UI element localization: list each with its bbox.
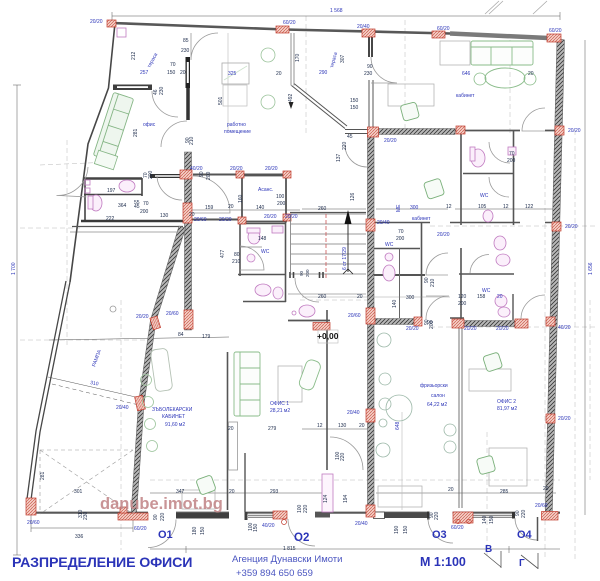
svg-text:285: 285 [500,489,509,495]
svg-text:46: 46 [153,89,159,95]
svg-text:20/40: 20/40 [357,24,370,30]
svg-text:120: 120 [458,294,467,300]
svg-text:90: 90 [427,320,433,326]
svg-text:20/20: 20/20 [496,326,509,332]
svg-text:Г: Г [519,558,525,569]
svg-text:148: 148 [258,236,267,242]
svg-text:60/20: 60/20 [437,26,450,32]
svg-text:180: 180 [192,526,198,535]
svg-text:150: 150 [350,105,359,111]
svg-text:20: 20 [359,423,365,429]
svg-text:70: 70 [398,229,404,235]
svg-text:20/40: 20/40 [347,410,360,416]
svg-text:20: 20 [357,294,363,300]
svg-text:20/40: 20/40 [355,521,368,527]
svg-text:122: 122 [525,204,534,210]
svg-text:20/20: 20/20 [558,416,571,422]
svg-text:20: 20 [448,487,454,493]
svg-text:290: 290 [319,70,328,76]
svg-text:О3: О3 [432,529,447,541]
svg-text:200: 200 [458,301,467,307]
svg-text:60/20: 60/20 [451,525,464,531]
svg-text:WC: WC [480,193,489,199]
svg-text:60/20: 60/20 [549,28,562,34]
svg-text:220: 220 [342,141,348,150]
svg-text:150: 150 [489,515,495,524]
svg-text:70: 70 [143,201,149,207]
svg-text:1 656: 1 656 [588,262,594,275]
svg-text:20/60: 20/60 [535,503,548,509]
svg-text:646: 646 [462,71,471,77]
svg-text:190: 190 [394,525,400,534]
svg-text:160: 160 [238,194,244,203]
svg-text:159: 159 [205,205,214,211]
svg-text:20: 20 [528,71,534,77]
svg-text:кабинет: кабинет [412,216,431,222]
svg-text:danube.imot.bg: danube.imot.bg [100,495,223,513]
svg-text:260: 260 [318,294,327,300]
svg-text:20/20: 20/20 [265,166,278,172]
svg-text:20: 20 [228,204,234,210]
svg-text:347: 347 [176,489,185,495]
svg-text:170: 170 [295,53,301,62]
svg-text:200: 200 [140,209,149,215]
svg-text:ОФИС 2: ОФИС 2 [497,399,516,405]
svg-text:222: 222 [106,216,115,222]
svg-text:WC: WC [261,249,270,255]
svg-text:158: 158 [477,294,486,300]
svg-text:200: 200 [206,171,212,180]
svg-text:20/20: 20/20 [384,138,397,144]
svg-text:фризьорски: фризьорски [420,383,448,389]
svg-text:130: 130 [160,213,169,219]
svg-text:85: 85 [183,38,189,44]
svg-text:81,97 м2: 81,97 м2 [497,406,517,412]
svg-text:64,22 м2: 64,22 м2 [427,402,447,408]
svg-text:200: 200 [277,201,286,207]
svg-text:210: 210 [430,278,436,287]
svg-text:20/20: 20/20 [285,214,298,220]
svg-text:кабинет: кабинет [456,93,475,99]
svg-text:492: 492 [288,93,294,102]
svg-text:WC: WC [385,242,394,248]
svg-text:90: 90 [199,171,205,177]
svg-text:М 1:100: М 1:100 [420,555,466,569]
svg-text:КАБИНЕТ: КАБИНЕТ [162,414,185,420]
svg-text:300: 300 [406,295,415,301]
svg-text:220: 220 [160,512,166,521]
svg-text:220: 220 [303,504,309,513]
svg-text:60/20: 60/20 [283,20,296,26]
svg-text:150: 150 [350,98,359,104]
svg-text:220: 220 [434,511,440,520]
svg-text:12: 12 [446,204,452,210]
svg-text:150: 150 [253,523,259,532]
svg-text:200: 200 [396,236,405,242]
svg-text:20/20: 20/20 [568,128,581,134]
svg-text:230: 230 [181,48,190,54]
svg-text:20/40: 20/40 [377,220,390,226]
svg-text:325: 325 [228,71,237,77]
svg-text:1 568: 1 568 [330,8,343,14]
svg-text:20/20: 20/20 [406,326,419,332]
svg-text:офис: офис [143,122,156,128]
svg-text:124: 124 [323,494,329,503]
svg-text:300: 300 [410,205,419,211]
svg-text:200: 200 [305,269,310,277]
svg-text:20: 20 [229,489,235,495]
svg-text:140: 140 [392,299,398,308]
svg-text:230: 230 [159,86,165,95]
svg-text:150: 150 [200,526,206,535]
svg-text:20/20: 20/20 [230,166,243,172]
svg-text:1 700: 1 700 [11,262,17,275]
svg-text:220: 220 [340,452,346,461]
svg-text:197: 197 [107,188,116,194]
svg-text:364: 364 [118,203,127,209]
svg-text:40/20: 40/20 [262,523,275,529]
svg-text:20/60: 20/60 [166,311,179,317]
svg-text:20/20: 20/20 [264,214,277,220]
svg-text:150: 150 [167,70,176,76]
svg-text:1 815: 1 815 [283,546,296,552]
svg-text:70: 70 [170,62,176,68]
svg-text:20/20: 20/20 [437,232,450,238]
svg-text:90: 90 [299,270,304,276]
svg-text:20: 20 [189,212,195,218]
svg-text:20: 20 [180,70,186,76]
svg-text:+359 894 650 659: +359 894 650 659 [236,568,313,576]
svg-text:12: 12 [317,423,323,429]
svg-text:293: 293 [270,489,279,495]
svg-text:210: 210 [189,136,195,145]
svg-text:230: 230 [364,71,373,77]
svg-text:20/60: 20/60 [27,520,40,526]
svg-text:помещение: помещение [224,129,251,135]
svg-text:О2: О2 [294,532,309,544]
svg-text:40/20: 40/20 [190,166,203,172]
svg-text:220: 220 [521,509,527,518]
svg-text:200: 200 [148,170,154,179]
svg-text:Агенция Дунавски Имоти: Агенция Дунавски Имоти [232,554,342,565]
svg-text:130: 130 [338,423,347,429]
svg-text:В: В [485,544,492,555]
svg-text:91,60 м2: 91,60 м2 [165,422,185,428]
svg-text:260: 260 [318,206,327,212]
svg-text:140: 140 [482,515,488,524]
svg-text:60/20: 60/20 [134,526,147,532]
svg-text:ЗЪБОЛЕКАРСКИ: ЗЪБОЛЕКАРСКИ [152,407,193,413]
svg-text:40/20: 40/20 [558,325,571,331]
svg-text:20: 20 [228,426,234,432]
svg-text:210: 210 [232,259,241,265]
svg-text:140: 140 [256,205,265,211]
svg-text:28,21 м2: 28,21 м2 [270,408,290,414]
svg-text:70: 70 [509,151,515,157]
svg-text:20/20: 20/20 [90,19,103,25]
svg-text:150: 150 [403,525,409,534]
svg-text:20/20: 20/20 [464,326,477,332]
svg-text:230: 230 [83,511,89,520]
svg-text:194: 194 [343,494,349,503]
svg-text:салон: салон [431,393,445,399]
svg-text:257: 257 [140,70,149,76]
svg-text:501: 501 [218,96,224,105]
svg-text:20/20: 20/20 [219,217,232,223]
svg-text:6 ст 17/29: 6 ст 17/29 [342,247,348,270]
svg-text:45: 45 [347,134,353,140]
svg-text:84: 84 [178,332,184,338]
svg-text:80: 80 [234,252,240,258]
svg-text:477: 477 [220,249,226,258]
svg-text:О4: О4 [517,529,533,541]
svg-text:307: 307 [340,54,346,63]
svg-text:45: 45 [134,204,140,210]
svg-text:ОФИС 1: ОФИС 1 [270,401,289,407]
svg-text:281: 281 [133,128,139,137]
svg-text:137: 137 [336,153,342,162]
svg-text:РАЗПРЕДЕЛЕНИЕ ОФИСИ: РАЗПРЕДЕЛЕНИЕ ОФИСИ [12,555,192,571]
svg-text:200: 200 [507,158,516,164]
svg-text:20/40: 20/40 [116,405,129,411]
svg-text:336: 336 [75,534,84,540]
svg-text:100: 100 [276,194,285,200]
svg-text:648: 648 [395,421,401,430]
svg-text:20/60: 20/60 [194,217,207,223]
svg-text:12: 12 [503,204,509,210]
svg-text:281: 281 [40,471,46,480]
svg-text:20: 20 [497,294,503,300]
svg-text:179: 179 [202,334,211,340]
svg-text:212: 212 [131,51,137,60]
svg-text:20/20: 20/20 [565,224,578,230]
svg-text:105: 105 [478,204,487,210]
svg-text:126: 126 [350,192,356,201]
svg-text:+0,00: +0,00 [317,331,339,341]
svg-text:90: 90 [367,64,373,70]
svg-text:работно: работно [227,122,246,128]
svg-text:О1: О1 [158,529,173,541]
svg-text:90: 90 [153,514,159,520]
svg-text:20/60: 20/60 [348,313,361,319]
svg-text:Асанс.: Асанс. [258,187,273,193]
svg-text:20: 20 [543,486,549,492]
svg-text:20: 20 [276,71,282,77]
svg-text:МЕ: МЕ [396,204,402,212]
svg-text:301: 301 [74,489,83,495]
svg-text:20/20: 20/20 [136,314,149,320]
svg-text:279: 279 [268,426,277,432]
